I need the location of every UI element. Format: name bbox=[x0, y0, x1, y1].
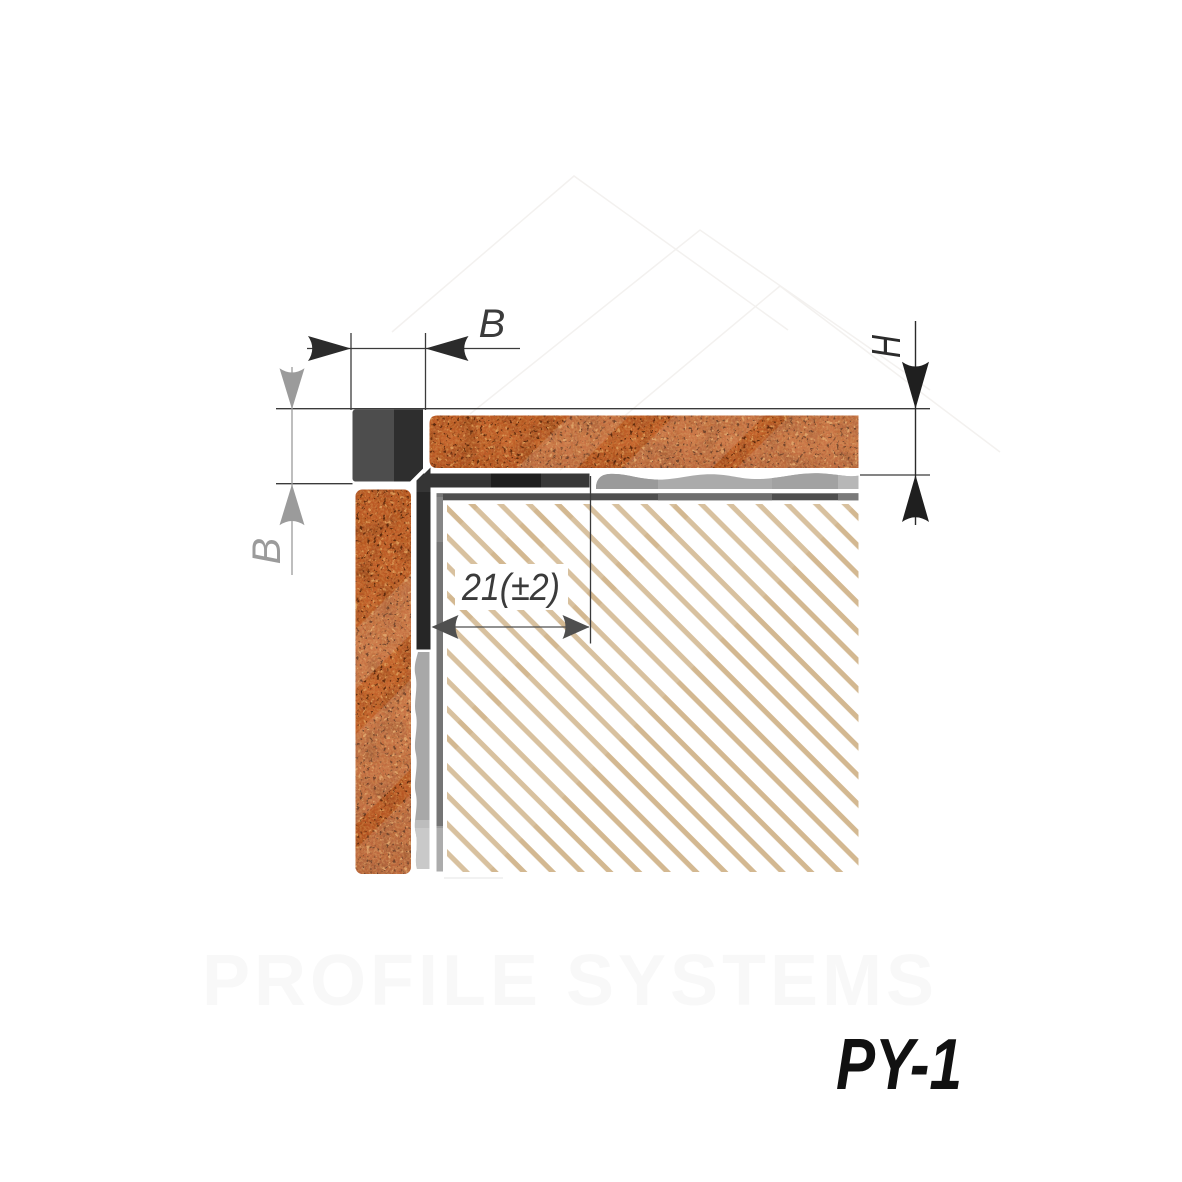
svg-text:21(±2): 21(±2) bbox=[461, 567, 560, 609]
svg-text:PY-1: PY-1 bbox=[836, 1025, 962, 1105]
svg-text:H: H bbox=[863, 335, 909, 358]
svg-text:B: B bbox=[245, 538, 289, 565]
svg-text:PROFILE SYSTEMS: PROFILE SYSTEMS bbox=[202, 941, 938, 1021]
svg-text:B: B bbox=[479, 302, 506, 346]
